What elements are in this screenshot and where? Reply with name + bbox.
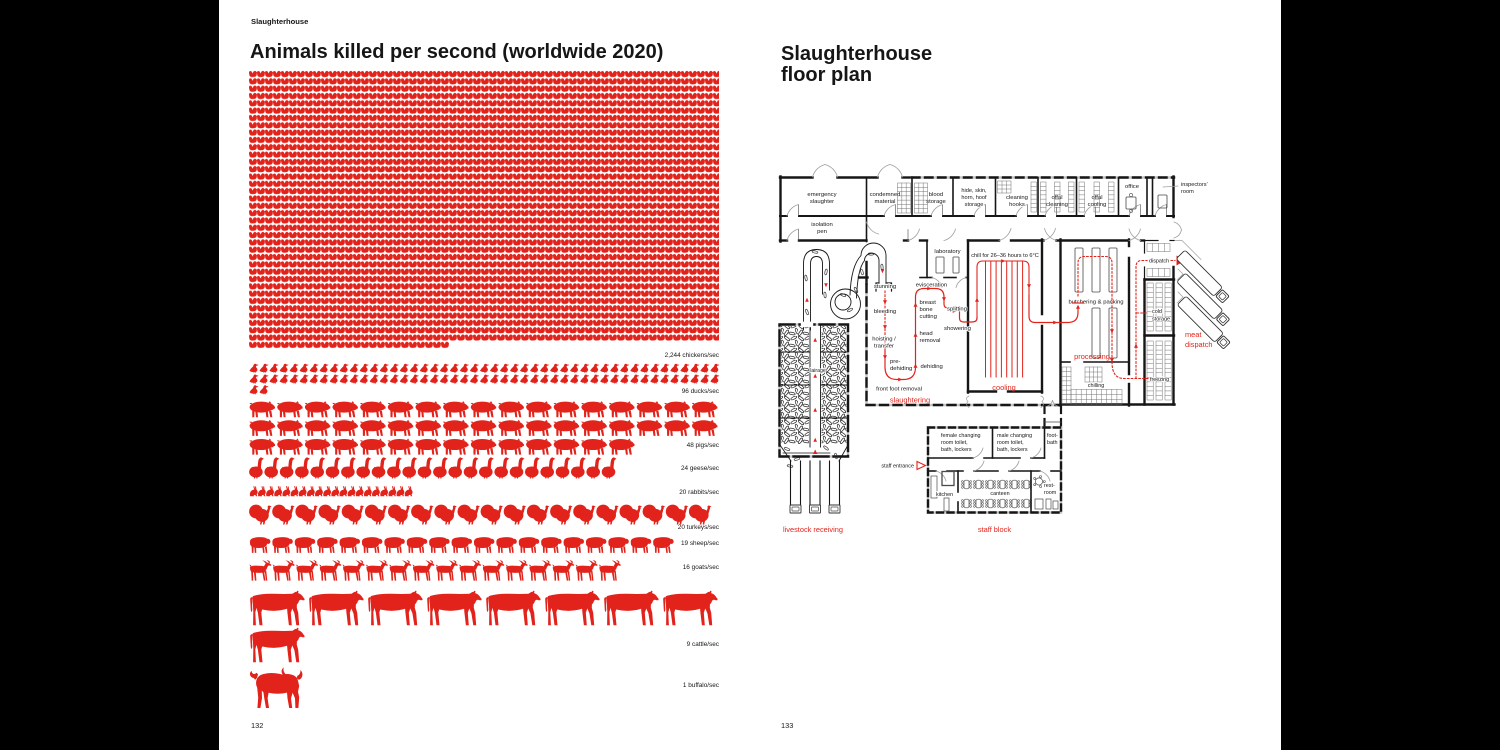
svg-text:20 rabbits/sec: 20 rabbits/sec [679, 489, 720, 496]
svg-text:20 turkeys/sec: 20 turkeys/sec [678, 524, 720, 531]
svg-text:48 pigs/sec: 48 pigs/sec [687, 442, 720, 449]
svg-text:room toilet,: room toilet, [941, 440, 968, 446]
svg-text:isolation: isolation [811, 222, 833, 228]
svg-text:room: room [1181, 189, 1194, 195]
svg-text:dispatch: dispatch [1149, 259, 1169, 265]
svg-text:freezing: freezing [1150, 377, 1169, 383]
svg-text:Slaughterhouse: Slaughterhouse [251, 17, 308, 26]
svg-text:stunning: stunning [874, 284, 896, 290]
svg-text:foot-: foot- [1047, 433, 1058, 439]
svg-text:16 goats/sec: 16 goats/sec [683, 564, 720, 571]
svg-text:Slaughterhouse: Slaughterhouse [781, 43, 932, 65]
svg-text:room: room [1044, 490, 1057, 496]
svg-text:132: 132 [251, 721, 263, 730]
svg-text:1 buffalo/sec: 1 buffalo/sec [683, 682, 720, 689]
svg-text:storage: storage [965, 202, 984, 208]
svg-text:cutting: cutting [920, 314, 937, 320]
svg-text:processing: processing [1074, 352, 1110, 361]
svg-text:floor plan: floor plan [781, 64, 872, 86]
svg-text:bath, lockers: bath, lockers [941, 447, 972, 453]
svg-text:24 geese/sec: 24 geese/sec [681, 465, 720, 472]
svg-text:133: 133 [781, 721, 793, 730]
svg-text:bath, lockers: bath, lockers [997, 447, 1028, 453]
svg-text:laboratory: laboratory [934, 249, 960, 255]
svg-text:hide, skin,: hide, skin, [961, 188, 987, 194]
svg-text:room toilet,: room toilet, [997, 440, 1024, 446]
svg-text:96 ducks/sec: 96 ducks/sec [682, 388, 720, 395]
svg-text:meat: meat [1185, 330, 1201, 339]
svg-text:staff block: staff block [978, 525, 1011, 534]
svg-text:office: office [1125, 184, 1140, 190]
svg-text:chill for 26–36 hours to 6°C: chill for 26–36 hours to 6°C [971, 253, 1039, 259]
svg-text:Animals killed per second (wor: Animals killed per second (worldwide 202… [250, 41, 663, 63]
svg-text:offal: offal [1051, 195, 1062, 201]
svg-text:hooks: hooks [1009, 202, 1025, 208]
svg-text:material: material [875, 199, 896, 205]
svg-text:breast: breast [920, 300, 937, 306]
svg-text:dehiding: dehiding [921, 364, 943, 370]
svg-text:pre-: pre- [890, 359, 901, 365]
svg-text:canteen: canteen [990, 491, 1009, 497]
svg-text:showering: showering [944, 326, 971, 332]
svg-text:transfer: transfer [874, 344, 894, 350]
svg-text:evisceration: evisceration [916, 283, 947, 289]
svg-text:blood: blood [929, 192, 943, 198]
svg-text:offal: offal [1091, 195, 1102, 201]
svg-text:livestock receiving: livestock receiving [783, 525, 843, 534]
svg-text:pen: pen [817, 229, 827, 235]
svg-text:front foot removal: front foot removal [876, 387, 922, 393]
svg-text:dispatch: dispatch [1185, 340, 1213, 349]
svg-text:cleaning: cleaning [1046, 202, 1068, 208]
svg-text:19 sheep/sec: 19 sheep/sec [681, 540, 720, 547]
svg-text:dehiding: dehiding [890, 366, 912, 372]
svg-text:cleaning: cleaning [1006, 195, 1028, 201]
svg-text:splitting: splitting [947, 307, 967, 313]
svg-text:2,244 chickens/sec: 2,244 chickens/sec [665, 352, 720, 359]
svg-text:horn, hoof: horn, hoof [961, 195, 987, 201]
svg-text:inspectors’: inspectors’ [1181, 182, 1208, 188]
svg-text:bath: bath [1047, 440, 1058, 446]
svg-text:chilling: chilling [1088, 383, 1104, 389]
svg-text:slaughtering: slaughtering [890, 396, 930, 405]
svg-text:storage: storage [926, 199, 946, 205]
svg-text:staff entrance: staff entrance [881, 464, 914, 470]
svg-text:female changing: female changing [941, 433, 981, 439]
svg-text:bleeding: bleeding [874, 309, 896, 315]
svg-text:bone: bone [920, 307, 934, 313]
svg-text:cold: cold [1152, 309, 1162, 315]
svg-text:removal: removal [920, 338, 941, 344]
svg-text:head: head [920, 331, 933, 337]
svg-text:cooling: cooling [1088, 202, 1107, 208]
svg-text:slaughter: slaughter [810, 199, 834, 205]
svg-text:rest-: rest- [1044, 483, 1055, 489]
svg-text:storage: storage [1152, 317, 1170, 323]
svg-text:cooling: cooling [992, 383, 1015, 392]
svg-text:hoisting /: hoisting / [872, 337, 896, 343]
svg-text:9 cattle/sec: 9 cattle/sec [687, 641, 720, 648]
svg-text:emergency: emergency [807, 192, 836, 198]
svg-text:condemned: condemned [870, 192, 901, 198]
svg-text:male changing: male changing [997, 433, 1032, 439]
svg-text:lairage: lairage [810, 368, 826, 374]
svg-text:kitchen: kitchen [936, 492, 953, 498]
